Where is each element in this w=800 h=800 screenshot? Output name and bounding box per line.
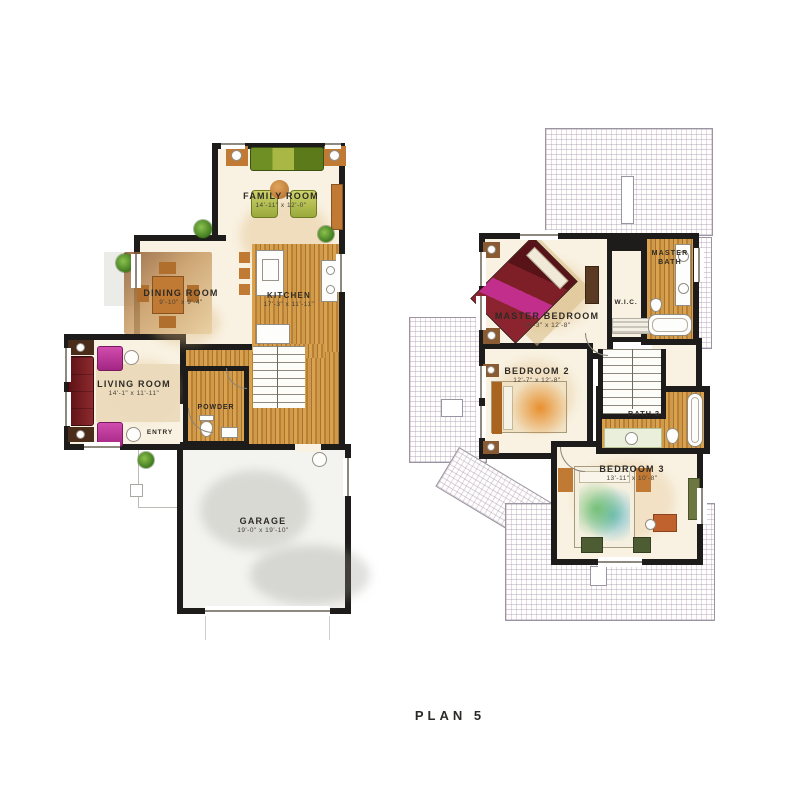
chest xyxy=(633,537,651,553)
bathtub-symbol xyxy=(648,314,692,336)
headboard xyxy=(492,382,502,434)
floorplan-canvas: FAMILY ROOM 14'-11" x 12'-0" DINING ROOM… xyxy=(0,0,800,800)
room-name: BATH 2 xyxy=(628,409,660,418)
dresser xyxy=(585,266,599,304)
lamp-symbol xyxy=(487,366,495,374)
room-label-bath2: BATH 2 xyxy=(628,409,660,418)
lamp-symbol xyxy=(487,443,495,451)
room-label-bedroom3: BEDROOM 3 13'-11" x 10'-8" xyxy=(599,464,664,482)
room-name: BEDROOM 2 xyxy=(504,366,569,376)
nightstand xyxy=(483,441,499,454)
skylight xyxy=(441,399,463,417)
room-dims: 12'-7" x 12'-8" xyxy=(513,377,560,384)
room-name: MASTER BATH xyxy=(646,250,694,268)
room-name: BEDROOM 3 xyxy=(599,464,664,474)
skylight xyxy=(590,566,607,586)
desk-chair xyxy=(645,519,656,530)
window xyxy=(694,248,704,282)
sink-symbol xyxy=(678,283,689,294)
room-label-master-bedroom: MASTER BEDROOM 14'-3" x 12'-8" xyxy=(495,311,599,329)
room-label-bedroom2: BEDROOM 2 12'-7" x 12'-8" xyxy=(504,366,569,384)
desk xyxy=(653,514,677,532)
bathtub-symbol xyxy=(687,393,703,447)
blanket-pattern xyxy=(579,483,630,541)
window xyxy=(520,230,558,240)
wall-filler xyxy=(610,233,644,246)
stair-rail xyxy=(632,349,633,409)
bath-counter xyxy=(604,428,662,448)
chimney xyxy=(621,176,634,224)
blanket-pattern xyxy=(506,382,568,434)
room-dims: 13'-11" x 10'-8" xyxy=(606,475,657,482)
nightstand xyxy=(483,328,500,344)
nightstand xyxy=(558,468,573,492)
window xyxy=(697,488,707,524)
room-name: MASTER BEDROOM xyxy=(495,311,599,321)
lamp-symbol xyxy=(487,245,496,254)
sink-symbol xyxy=(625,432,638,445)
room-name: W.I.C. xyxy=(614,299,637,306)
window xyxy=(476,296,486,330)
window xyxy=(476,366,486,398)
plan-title: PLAN 5 xyxy=(415,708,485,723)
window xyxy=(598,557,642,567)
room-label-wic: W.I.C. xyxy=(614,299,637,306)
chest xyxy=(581,537,603,553)
room-label-master-bath: MASTER BATH xyxy=(646,250,694,268)
window xyxy=(476,252,486,286)
room-dims: 14'-3" x 12'-8" xyxy=(523,322,570,329)
bed-symbol xyxy=(491,381,567,433)
second-floor-plan: MASTER BEDROOM 14'-3" x 12'-8" MASTER BA… xyxy=(0,0,800,800)
lamp-symbol xyxy=(487,331,496,340)
window xyxy=(476,406,486,438)
